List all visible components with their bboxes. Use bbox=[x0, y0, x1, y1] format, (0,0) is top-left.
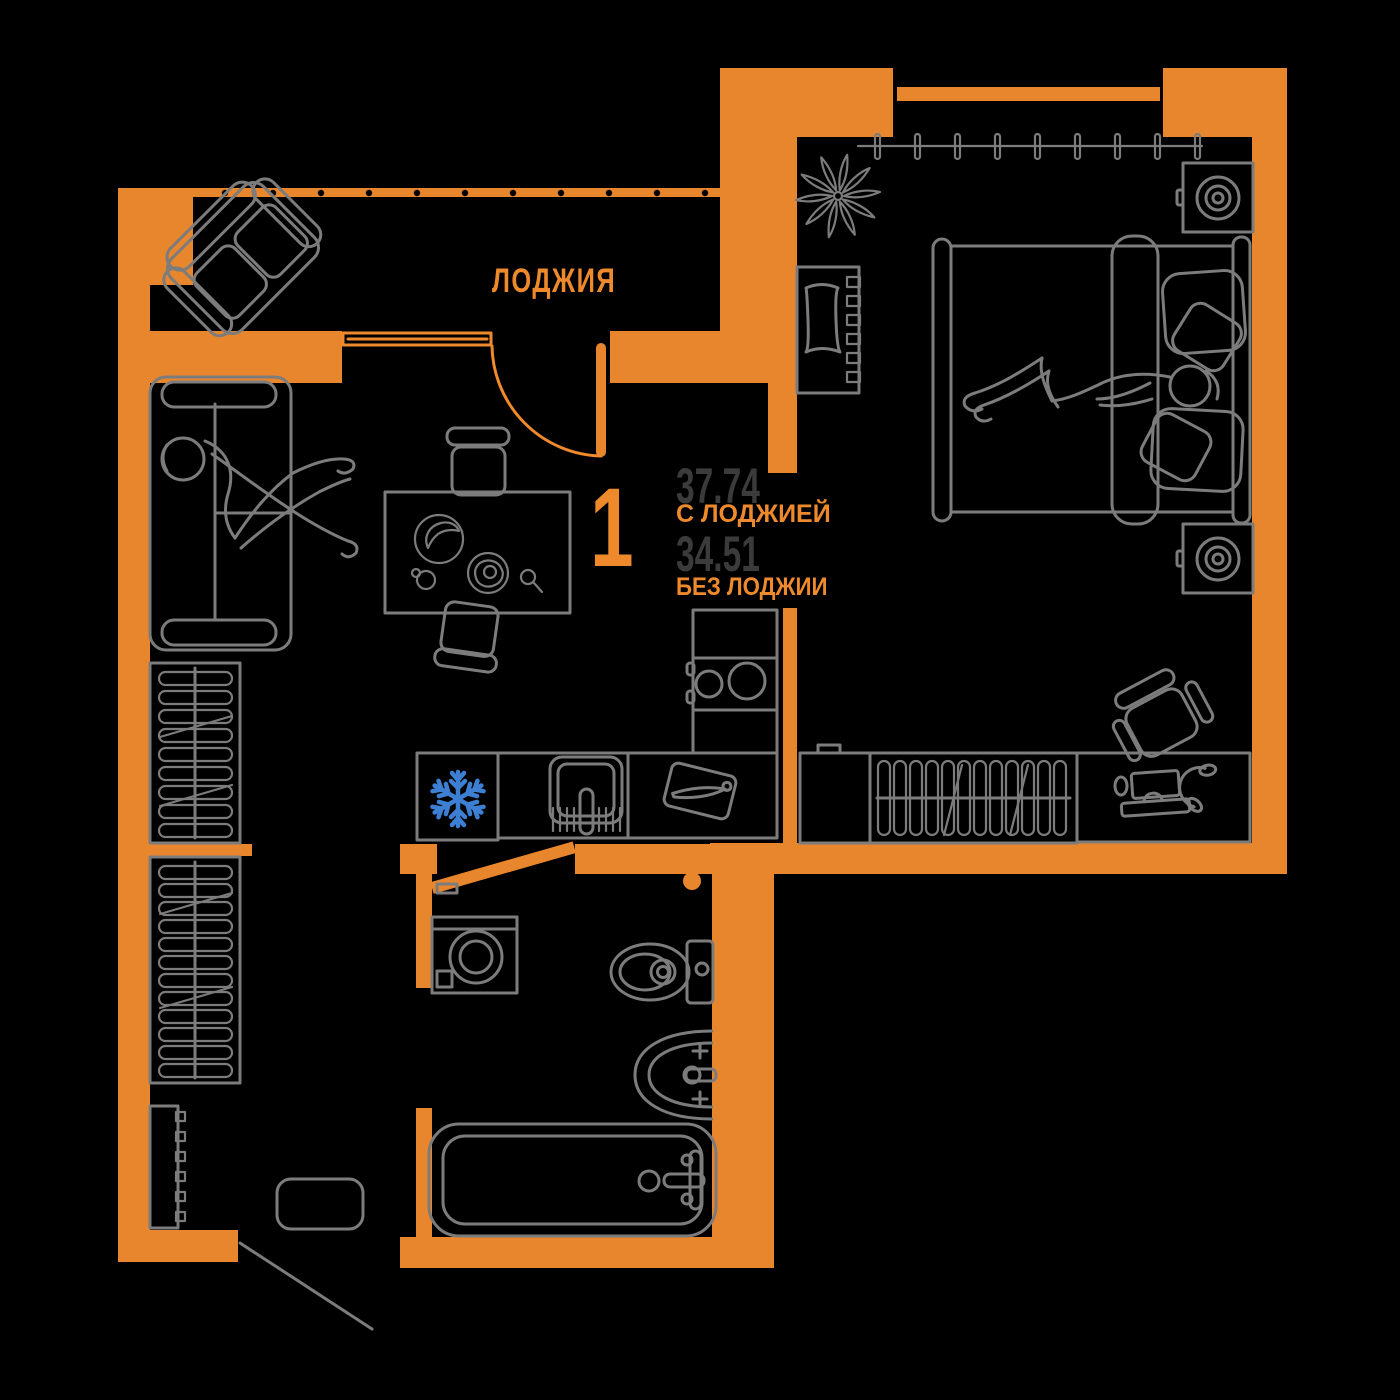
pillow bbox=[1137, 409, 1215, 485]
closet-upper bbox=[150, 663, 240, 843]
floor-plan-drawing bbox=[0, 0, 1400, 1400]
curtain-rod bbox=[858, 134, 1202, 159]
kitchen-sink-unit bbox=[498, 753, 628, 838]
person-on-sofa bbox=[162, 438, 357, 557]
speaker-nightstand-bottom bbox=[1177, 524, 1253, 593]
doormat bbox=[277, 1179, 363, 1229]
balcony-window bbox=[343, 333, 491, 345]
entrance-door-leaf bbox=[240, 1243, 372, 1329]
sofa bbox=[150, 377, 291, 650]
person-on-bed bbox=[964, 358, 1218, 421]
dresser bbox=[797, 267, 860, 393]
rooms-count: 1 bbox=[590, 472, 634, 584]
headphones-icon bbox=[1173, 756, 1219, 816]
wall-entrance-bottom bbox=[118, 1230, 238, 1262]
mouse bbox=[1115, 777, 1127, 795]
wall-loggia-bottom-right bbox=[610, 331, 720, 383]
snowflake-icon bbox=[431, 772, 485, 826]
desk bbox=[1077, 753, 1250, 842]
speaker-nightstand-top bbox=[1177, 163, 1253, 232]
area-without-loggia-caption: БЕЗ ЛОДЖИИ bbox=[676, 575, 828, 600]
breakfast-plates bbox=[412, 515, 542, 593]
shoe-rack bbox=[150, 1106, 185, 1228]
bathroom-sink bbox=[635, 1031, 716, 1119]
area-without-loggia-value: 34.51 bbox=[676, 529, 760, 579]
bathtub bbox=[429, 1124, 716, 1236]
dining-table bbox=[385, 492, 570, 613]
floor-plan: ЛОДЖИЯ 1 37.74 С ЛОДЖИЕЙ 34.51 БЕЗ ЛОДЖИ… bbox=[0, 0, 1400, 1400]
plant bbox=[796, 154, 880, 237]
wall-closet-divider bbox=[147, 844, 252, 856]
wall-bath-top-right bbox=[575, 844, 712, 874]
washing-machine bbox=[432, 884, 517, 993]
pillow bbox=[1150, 408, 1244, 493]
bathroom-door-leaf bbox=[430, 841, 576, 893]
wall-bedroom-door-lower bbox=[783, 608, 797, 843]
wall-bedroom-top-left bbox=[797, 68, 893, 137]
kitchen-counter-board bbox=[628, 753, 777, 838]
wall-loggia-bottom-left bbox=[118, 331, 342, 383]
toilet bbox=[611, 941, 713, 1003]
wall-loggia-bedroom bbox=[720, 68, 797, 383]
office-chair bbox=[1100, 659, 1217, 767]
stove bbox=[687, 610, 777, 753]
loggia-label: ЛОДЖИЯ bbox=[492, 264, 616, 298]
wall-loggia-pier bbox=[150, 188, 193, 285]
walls bbox=[118, 68, 1287, 1268]
wall-bedroom-door-upper bbox=[768, 383, 797, 473]
bed bbox=[933, 236, 1250, 524]
wall-bath-left-upper bbox=[416, 856, 432, 988]
closet-lower bbox=[150, 857, 240, 1083]
area-with-loggia-caption: С ЛОДЖИЕЙ bbox=[676, 502, 831, 527]
balcony-door-leaf bbox=[596, 343, 606, 457]
wall-right bbox=[1252, 68, 1287, 874]
wall-bath-right bbox=[712, 874, 774, 1268]
wall-bath-bottom bbox=[400, 1237, 774, 1268]
dining-chair-top bbox=[447, 428, 509, 495]
bedroom-wardrobe bbox=[800, 745, 1077, 843]
dining-chair-bottom bbox=[434, 600, 504, 673]
bedroom-window-sill bbox=[897, 87, 1160, 101]
riser-dot bbox=[683, 872, 701, 890]
wall-bedroom-bottom bbox=[710, 843, 1287, 874]
